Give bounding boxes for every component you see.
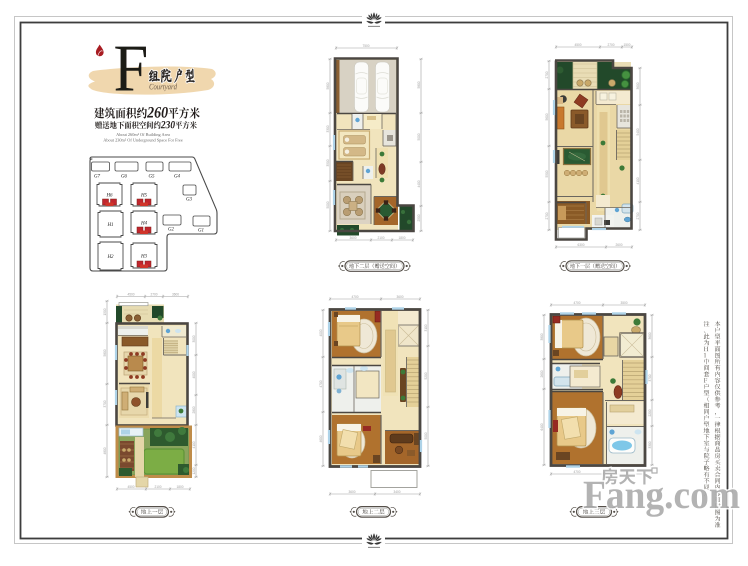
svg-text:H4: H4 — [140, 222, 148, 227]
svg-text:2700: 2700 — [150, 293, 157, 297]
svg-text:H1: H1 — [106, 223, 113, 228]
svg-text:3800: 3800 — [540, 333, 544, 340]
svg-text:3400: 3400 — [393, 490, 400, 494]
svg-text:2800: 2800 — [192, 406, 196, 413]
svg-text:3100: 3100 — [424, 324, 428, 331]
svg-text:5000: 5000 — [417, 133, 421, 140]
svg-text:3600: 3600 — [172, 293, 179, 297]
svg-text:4700: 4700 — [573, 470, 580, 474]
svg-text:5000: 5000 — [326, 201, 330, 208]
svg-text:4000: 4000 — [319, 329, 323, 336]
svg-text:2600: 2600 — [615, 243, 622, 247]
svg-text:2100: 2100 — [377, 236, 384, 240]
svg-text:2700: 2700 — [636, 212, 640, 219]
svg-text:1500: 1500 — [623, 43, 630, 47]
svg-text:G4: G4 — [174, 175, 181, 180]
svg-text:3500: 3500 — [620, 301, 627, 305]
svg-text:4800: 4800 — [103, 447, 107, 454]
svg-text:2700: 2700 — [607, 43, 614, 47]
svg-text:5000: 5000 — [424, 432, 428, 439]
svg-text:3700: 3700 — [648, 374, 652, 381]
svg-text:3600: 3600 — [396, 295, 403, 299]
svg-text:3600: 3600 — [349, 236, 356, 240]
svg-text:About 230m² Of Underground Spa: About 230m² Of Underground Space For Fre… — [103, 137, 183, 142]
svg-text:4500: 4500 — [127, 485, 134, 489]
svg-text:5600: 5600 — [545, 113, 549, 120]
svg-text:1800: 1800 — [398, 236, 405, 240]
svg-text:2700: 2700 — [545, 212, 549, 219]
svg-text:3600: 3600 — [348, 490, 355, 494]
svg-text:2600: 2600 — [540, 370, 544, 377]
svg-text:4700: 4700 — [351, 295, 358, 299]
svg-text:3600: 3600 — [636, 82, 640, 89]
svg-text:4000: 4000 — [192, 371, 196, 378]
svg-text:3300: 3300 — [648, 441, 652, 448]
svg-text:4100: 4100 — [636, 177, 640, 184]
svg-text:5800: 5800 — [417, 81, 421, 88]
svg-text:G3: G3 — [186, 198, 193, 203]
svg-text:H3: H3 — [140, 255, 148, 260]
svg-text:4100: 4100 — [192, 441, 196, 448]
svg-text:4600: 4600 — [319, 435, 323, 442]
svg-text:4500: 4500 — [574, 43, 581, 47]
svg-text:G1: G1 — [198, 229, 204, 234]
svg-text:3600: 3600 — [648, 332, 652, 339]
svg-text:4400: 4400 — [417, 180, 421, 187]
svg-text:2200: 2200 — [648, 409, 652, 416]
svg-text:5500: 5500 — [545, 170, 549, 177]
svg-text:4700: 4700 — [319, 380, 323, 387]
svg-text:1500: 1500 — [103, 308, 107, 315]
svg-text:5800: 5800 — [326, 82, 330, 89]
svg-text:H6: H6 — [105, 194, 113, 199]
svg-text:G7: G7 — [94, 175, 101, 180]
svg-text:G6: G6 — [121, 175, 128, 180]
svg-text:2100: 2100 — [154, 485, 161, 489]
svg-text:4700: 4700 — [573, 301, 580, 305]
svg-text:1200: 1200 — [192, 467, 196, 474]
svg-text:H5: H5 — [140, 194, 148, 199]
svg-text:3000: 3000 — [192, 335, 196, 342]
svg-text:G2: G2 — [168, 228, 175, 233]
svg-text:3700: 3700 — [103, 400, 107, 407]
svg-text:5200: 5200 — [424, 372, 428, 379]
svg-text:3300: 3300 — [326, 125, 330, 132]
svg-text:6400: 6400 — [540, 423, 544, 430]
svg-text:H2: H2 — [106, 255, 114, 260]
svg-text:4500: 4500 — [127, 293, 134, 297]
svg-text:5400: 5400 — [636, 128, 640, 135]
svg-text:6300: 6300 — [577, 243, 584, 247]
svg-text:2500: 2500 — [417, 214, 421, 221]
svg-text:7500: 7500 — [362, 44, 369, 48]
svg-text:1800: 1800 — [176, 485, 183, 489]
svg-text:2700: 2700 — [545, 71, 549, 78]
svg-text:G5: G5 — [148, 175, 155, 180]
svg-text:5800: 5800 — [103, 349, 107, 356]
svg-text:3500: 3500 — [326, 159, 330, 166]
